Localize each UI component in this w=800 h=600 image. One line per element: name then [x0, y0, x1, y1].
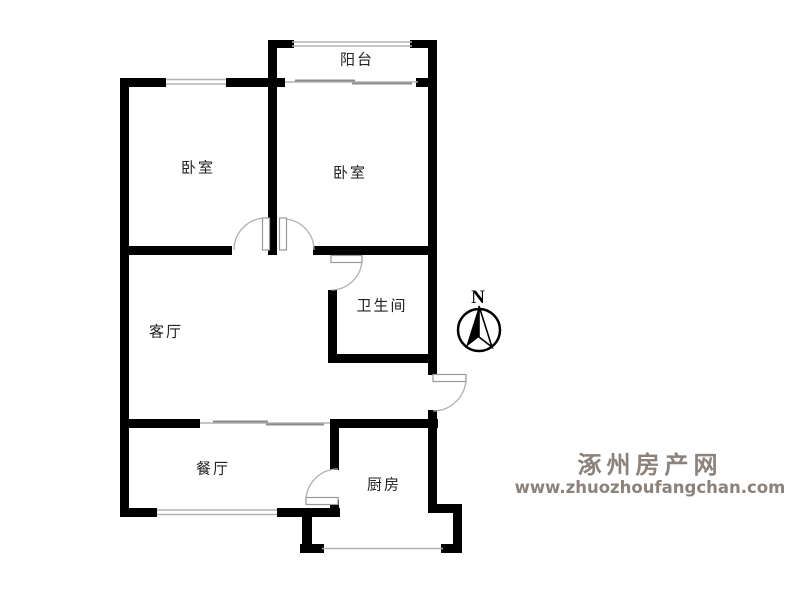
- door-leaf-bedroom-left: [263, 218, 270, 250]
- door-arc-kitchen: [306, 469, 338, 501]
- room-label-bathroom: 卫生间: [356, 295, 407, 316]
- floorplan-image: 阳台 卧室 卧室 客厅 卫生间 餐厅 厨房 N 涿州房产网 www.zhuozh…: [0, 0, 800, 600]
- door-leaf-bedroom-right: [280, 218, 287, 250]
- door-leaf-kitchen: [306, 498, 338, 505]
- room-label-living-room: 客厅: [149, 321, 183, 342]
- room-label-balcony: 阳台: [340, 49, 374, 70]
- watermark: 涿州房产网 www.zhuozhoufangchan.com: [505, 452, 795, 498]
- door-leaf-bathroom: [331, 256, 362, 263]
- compass-north-label: N: [471, 287, 485, 309]
- door-arc-entrance: [433, 378, 466, 411]
- walls-group: [120, 40, 462, 553]
- door-arc-bathroom: [331, 259, 362, 290]
- compass-icon: [458, 306, 500, 351]
- room-label-bedroom-left: 卧室: [181, 157, 215, 178]
- door-arc-bedroom-left: [234, 218, 266, 250]
- room-label-kitchen: 厨房: [367, 474, 401, 495]
- room-label-dining-room: 餐厅: [196, 458, 230, 479]
- watermark-site-name: 涿州房产网: [505, 452, 795, 478]
- watermark-site-url: www.zhuozhoufangchan.com: [505, 479, 795, 497]
- room-label-bedroom-right: 卧室: [333, 162, 367, 183]
- door-leaf-entrance: [433, 375, 466, 382]
- door-arc-bedroom-right: [283, 219, 314, 250]
